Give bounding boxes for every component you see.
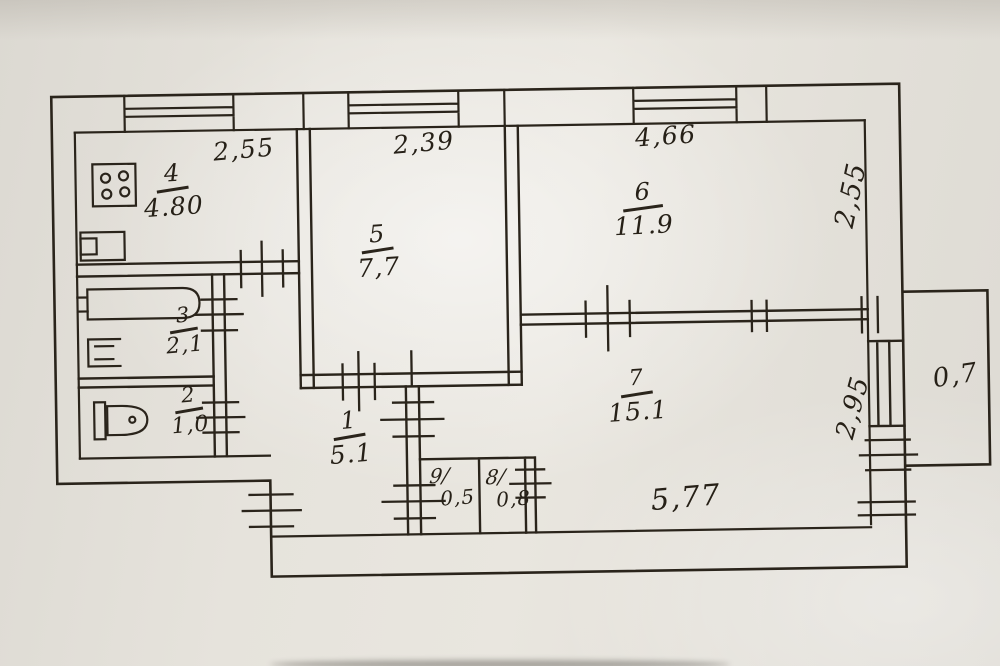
room-label-7: 7 15.1 [599, 365, 675, 425]
room-number: 6 [601, 178, 684, 206]
room-area: 7,7 [339, 252, 419, 282]
room-label-kitchen: 4 4.80 [136, 159, 210, 221]
room-area: 11.9 [602, 210, 685, 239]
room-label-5: 5 7,7 [337, 219, 419, 282]
kitchen-door-hatch [241, 241, 284, 296]
washbasin-icon [88, 339, 120, 366]
door-hatches [195, 231, 918, 527]
room-area: 0,5 [440, 486, 476, 508]
kitchen-sink-icon [80, 232, 124, 261]
room-area: 4.80 [138, 191, 210, 221]
dim-top-room6: 4,66 [634, 119, 698, 152]
room-area: 0,8 [496, 487, 532, 509]
room-label-closet8: 8/ 0,8 [485, 464, 532, 510]
window-room6 [633, 86, 737, 124]
floorplan-drawing [0, 0, 1000, 666]
room-number: 5 [337, 219, 416, 248]
room-label-bathroom: 3 2,1 [150, 302, 218, 359]
corridor-upper-door-hatch [381, 402, 444, 437]
window-room5 [348, 91, 459, 129]
dim-top-kitchen: 2,55 [212, 132, 276, 166]
window-kitchen [124, 94, 234, 132]
scanned-floorplan-photo: 4 4.80 5 7,7 6 11.9 3 2,1 2 1,0 1 5.1 [0, 0, 1000, 666]
stove-icon [92, 164, 136, 207]
room-number: 8/ [485, 464, 531, 487]
kitchen-bottom-wall [77, 261, 299, 276]
room7-door-hatch [585, 286, 630, 351]
photo-edge-shadow [270, 660, 730, 666]
dim-bottom: 5,77 [649, 477, 722, 517]
room-number: 1 [313, 406, 383, 436]
room6-room7-wall [521, 309, 868, 324]
toilet-icon [94, 402, 148, 440]
wall-tick-right [861, 297, 878, 332]
room-label-closet9: 9/ 0,5 [429, 463, 476, 509]
wall-tick-mid [752, 301, 767, 331]
room-label-hall: 1 5.1 [313, 406, 386, 469]
room5-right-wall [505, 126, 522, 385]
floorplan: 4 4.80 5 7,7 6 11.9 3 2,1 2 1,0 1 5.1 [0, 0, 1000, 666]
room5-left-wall [297, 129, 314, 388]
room-number: 2 [155, 382, 221, 408]
room-number: 3 [150, 302, 216, 328]
room-label-toilet: 2 1,0 [155, 382, 223, 439]
room-number: 9/ [429, 463, 475, 486]
room-label-6: 6 11.9 [601, 178, 686, 240]
room-area: 15.1 [601, 396, 675, 426]
room-number: 7 [599, 365, 672, 392]
room-number: 4 [136, 159, 207, 188]
dim-top-room5: 2,39 [392, 126, 456, 160]
